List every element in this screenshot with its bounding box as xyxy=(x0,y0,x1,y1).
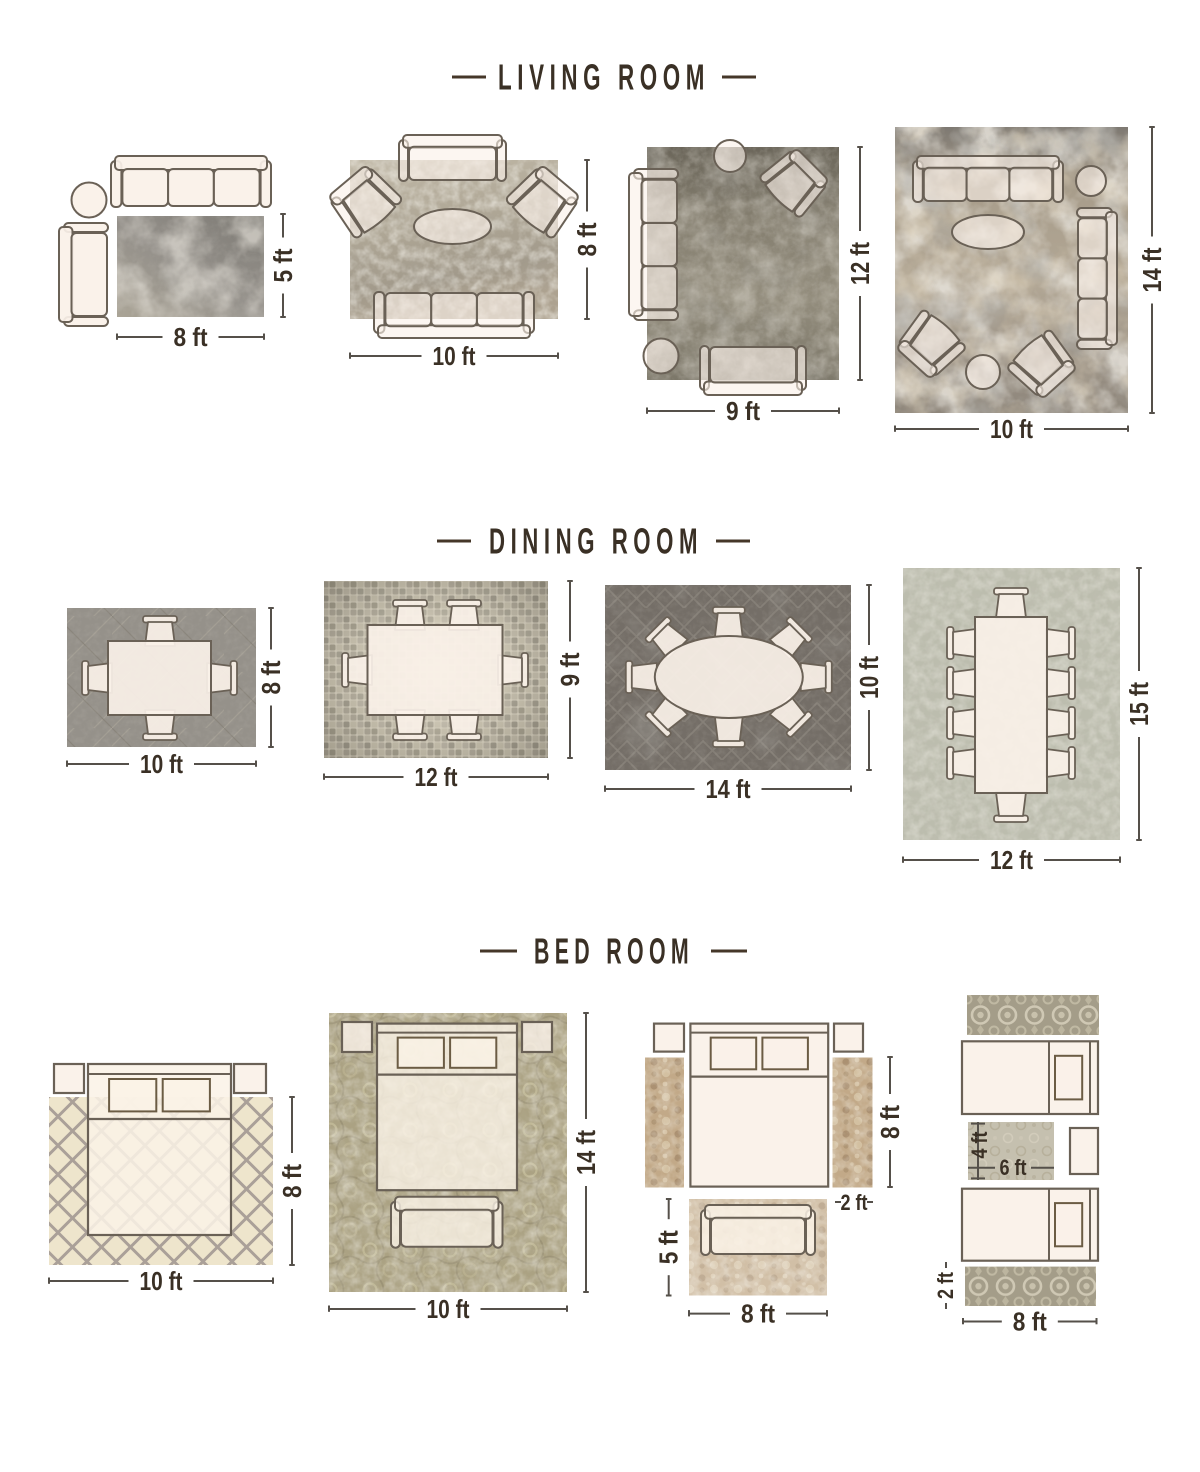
svg-text:14 ft: 14 ft xyxy=(1137,247,1167,292)
svg-text:10 ft: 10 ft xyxy=(854,656,884,699)
svg-text:8 ft: 8 ft xyxy=(875,1105,905,1139)
svg-text:8 ft: 8 ft xyxy=(572,222,602,256)
svg-text:5 ft: 5 ft xyxy=(654,1230,684,1264)
svg-text:5 ft: 5 ft xyxy=(268,248,298,282)
svg-text:8 ft: 8 ft xyxy=(256,660,286,694)
svg-text:12 ft: 12 ft xyxy=(845,242,875,285)
svg-text:BED ROOM: BED ROOM xyxy=(534,931,694,972)
svg-text:8 ft: 8 ft xyxy=(1013,1306,1047,1336)
svg-text:9 ft: 9 ft xyxy=(726,396,760,426)
svg-text:12 ft: 12 ft xyxy=(990,845,1033,875)
svg-text:14 ft: 14 ft xyxy=(571,1130,601,1175)
svg-text:4 ft: 4 ft xyxy=(967,1131,992,1159)
svg-text:DINING ROOM: DINING ROOM xyxy=(489,521,703,562)
svg-text:10 ft: 10 ft xyxy=(433,341,476,371)
svg-text:2 ft: 2 ft xyxy=(841,1190,869,1215)
svg-text:10 ft: 10 ft xyxy=(140,1266,183,1296)
svg-text:10 ft: 10 ft xyxy=(427,1294,470,1324)
svg-text:2 ft: 2 ft xyxy=(933,1271,958,1299)
svg-text:10 ft: 10 ft xyxy=(140,749,183,779)
svg-text:9 ft: 9 ft xyxy=(555,652,585,686)
svg-text:8 ft: 8 ft xyxy=(277,1164,307,1198)
svg-text:6 ft: 6 ft xyxy=(1000,1155,1028,1180)
svg-text:8 ft: 8 ft xyxy=(174,322,208,352)
svg-text:LIVING ROOM: LIVING ROOM xyxy=(498,57,710,98)
svg-text:14 ft: 14 ft xyxy=(706,774,751,804)
svg-text:8 ft: 8 ft xyxy=(741,1298,775,1328)
svg-text:12 ft: 12 ft xyxy=(415,762,458,792)
svg-text:15 ft: 15 ft xyxy=(1124,682,1154,726)
svg-text:10 ft: 10 ft xyxy=(990,414,1033,444)
